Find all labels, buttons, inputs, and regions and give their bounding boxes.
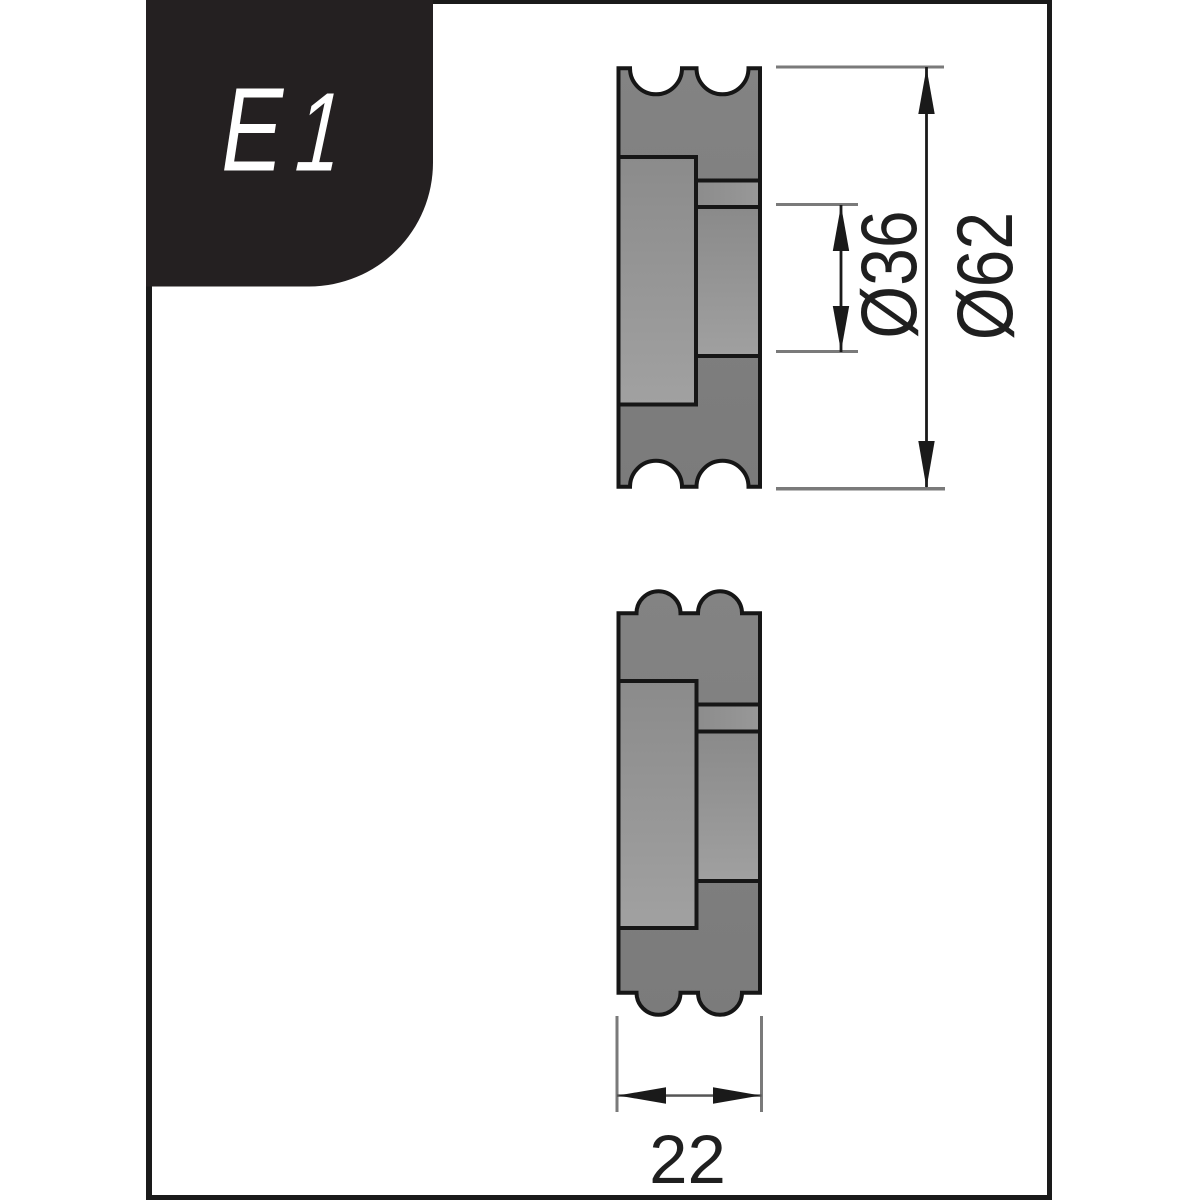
- svg-text:22: 22: [649, 1121, 726, 1198]
- svg-text:E: E: [221, 62, 284, 196]
- svg-text:Ø36: Ø36: [844, 210, 933, 338]
- svg-text:Ø62: Ø62: [940, 212, 1029, 340]
